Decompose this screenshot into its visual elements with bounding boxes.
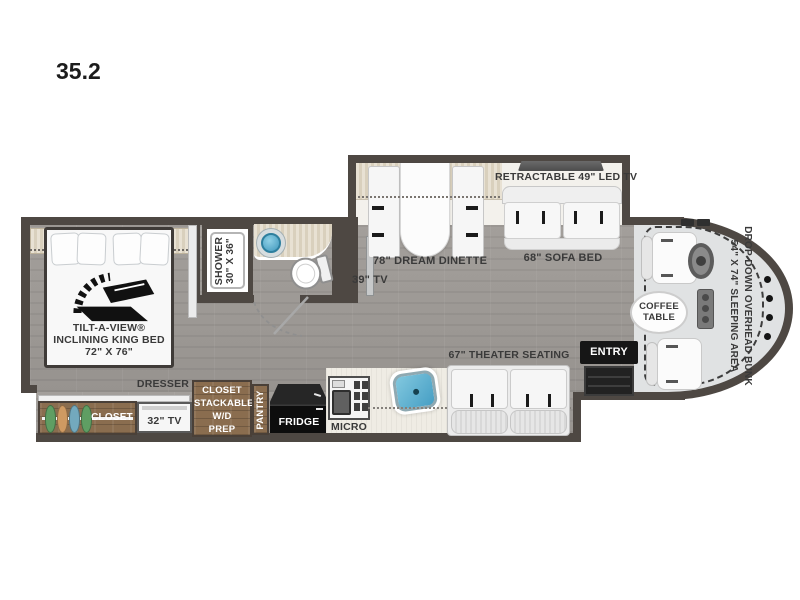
burner-icon [354,403,360,411]
pantry-label-wrap: PANTRY [255,385,267,435]
bathroom-door-swing [248,292,314,342]
pillow [112,233,142,266]
wall-slide-right [622,155,630,225]
dinette-armrest-mark [372,233,384,237]
sun-visor [697,219,710,226]
sofa-label: 68" SOFA BED [505,252,621,264]
theater-seating [447,365,570,436]
fridge: FRIDGE [270,384,328,433]
bunk-label-wrap: DROP-DOWN OVERHEAD BUNK 54" X 74" SLEEPI… [726,224,754,388]
dashboard-dot [766,295,773,302]
king-bed: TILT-A-VIEW® INCLINING KING BED 72" X 76… [44,227,174,368]
fridge-handle [314,393,321,397]
sun-visor [681,219,694,226]
dashboard-dot [764,333,771,340]
passenger-chair [646,336,704,392]
wd-label-3: W/D [194,411,250,422]
floorplan-canvas: 35.2 TILT-A-VIEW® IN [0,0,800,600]
wd-label-4: PREP [194,424,250,435]
burner-icon [362,392,368,400]
oven-icon [332,390,351,415]
wardrobe-closet: CLOSET [38,401,137,435]
theater-mark [491,394,494,407]
dinette-armrest-mark [372,206,384,210]
theater-front [510,410,567,434]
sofa-mark [542,211,545,224]
micro-label: MICRO [322,421,376,433]
sofa-front [504,238,620,250]
burner-icon [354,381,360,389]
wheel-hub [696,256,706,266]
wall-rear [21,217,30,393]
coffee-table-label-1: COFFEE [632,301,686,312]
plan-title: 35.2 [56,58,101,85]
step-line [588,376,630,378]
chair-mark [666,345,678,348]
coffee-table: COFFEE TABLE [630,291,688,334]
dinette-slide-line [358,196,504,198]
dinette-bench-left [368,166,400,258]
steering-wheel-icon [688,243,714,279]
sofa-mark [516,211,519,224]
pantry-label: PANTRY [255,385,266,435]
theater-mark [470,394,473,407]
theater-front [451,410,508,434]
hanger-icon [45,405,56,433]
chair-mark [661,274,673,277]
sofa-bed [502,186,622,250]
entry-steps [584,366,634,396]
sofa-mark [600,211,603,224]
wd-label-1: CLOSET [194,385,250,396]
bedroom-tv-cabinet [188,225,197,318]
fridge-handle [316,408,323,410]
bathroom-sink [256,228,286,258]
tv32-label: 32" TV [139,415,190,427]
theater-label: 67" THEATER SEATING [448,349,570,361]
theater-mark [548,394,551,407]
retractable-tv-label: RETRACTABLE 49" LED TV [495,171,635,183]
chair-mark [666,380,678,383]
theater-mark [526,394,529,407]
tilt-bed-icon [60,266,160,322]
pillow [76,233,106,266]
dinette-table [400,163,450,257]
theater-cushion [451,369,508,409]
theater-cushion [510,369,567,409]
dinette-armrest-mark [466,206,478,210]
retractable-tv [518,161,604,171]
bed-label-3: 72" X 76" [47,346,171,358]
hallway-tv-label: 39" TV [352,274,388,286]
wd-label-2: STACKABLE [194,398,250,409]
wall-top-front [622,217,684,225]
dash-console [697,289,714,329]
sofa-mark [574,211,577,224]
tv32-screen [142,406,187,410]
bed-label-2: INCLINING KING BED [47,334,171,346]
closet-label: CLOSET [90,412,134,423]
shower-label-1: SHOWER [213,229,225,293]
dinette-armrest-mark [466,233,478,237]
console-dot [702,305,709,312]
shower-label: SHOWER 30" X 36" [213,229,243,293]
sink-bowl [261,233,281,253]
console-dot [702,294,709,301]
bedroom-tv-32: 32" TV [137,402,192,433]
step-line [588,385,630,387]
dinette-label: 78" DREAM DINETTE [355,255,505,267]
coffee-table-label-2: TABLE [632,312,686,323]
bed-label-1: TILT-A-VIEW® [47,322,171,334]
wall-slide-left [348,155,356,225]
burner-icon [354,392,360,400]
hanger-icon [69,405,80,433]
sink-drain [413,388,420,395]
sofa-cushion [504,202,561,239]
dashboard-dot [766,314,773,321]
bunk-label-2: 54" X 74" SLEEPING AREA [726,224,740,388]
hanger-icon [57,405,68,433]
entry-label: ENTRY [580,346,638,358]
wall-rear-corner [21,385,37,393]
chair-mark [661,239,673,242]
burner-icon [362,381,368,389]
microwave [328,376,370,420]
shower-label-2: 30" X 36" [225,229,236,293]
fridge-label: FRIDGE [270,416,328,428]
entry-door: ENTRY [580,341,638,364]
bunk-label-1: DROP-DOWN OVERHEAD BUNK [740,224,754,388]
dinette-bench-right [452,166,484,258]
chair-seat [657,338,702,390]
wd-prep-closet: CLOSET STACKABLE W/D PREP [192,380,252,437]
dashboard-dot [764,276,771,283]
console-dot [702,316,709,323]
sofa-cushion [563,202,620,239]
pillow [139,232,170,265]
vent-icon [332,380,345,388]
